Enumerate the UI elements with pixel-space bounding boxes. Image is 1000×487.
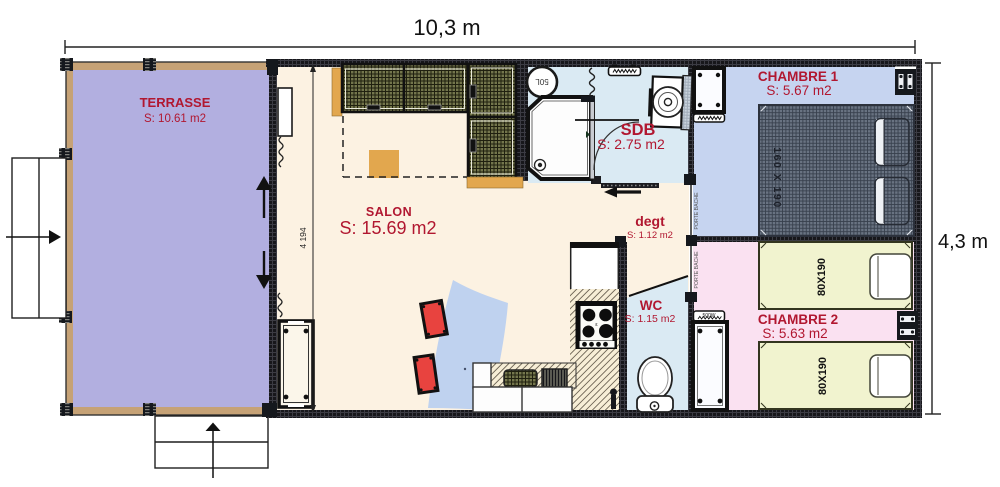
svg-text:S: 5.67 m2: S: 5.67 m2 [766, 83, 831, 98]
svg-text:CHAMBRE 2: CHAMBRE 2 [758, 312, 838, 327]
svg-text:160 X 190: 160 X 190 [771, 147, 783, 208]
svg-text:80X190: 80X190 [816, 258, 828, 296]
svg-text:4 194: 4 194 [298, 227, 308, 249]
svg-text:S: 1.15 m2: S: 1.15 m2 [625, 313, 676, 325]
svg-text:S: 5.63 m2: S: 5.63 m2 [762, 326, 827, 341]
svg-text:S: 2.75 m2: S: 2.75 m2 [597, 136, 665, 152]
svg-text:SALON: SALON [366, 205, 412, 219]
svg-text:50L: 50L [535, 77, 549, 86]
svg-text:degt: degt [635, 213, 665, 229]
svg-text:CHAMBRE 1: CHAMBRE 1 [758, 69, 839, 84]
svg-text:4,3 m: 4,3 m [938, 231, 988, 253]
svg-text:80X190: 80X190 [817, 357, 829, 395]
svg-text:S: 1.12 m2: S: 1.12 m2 [627, 230, 673, 241]
svg-text:10,3 m: 10,3 m [413, 15, 480, 40]
svg-text:PORTE BACHE: PORTE BACHE [694, 251, 700, 289]
svg-text:S: 15.69 m2: S: 15.69 m2 [339, 218, 436, 238]
svg-text:TERRASSE: TERRASSE [140, 95, 211, 110]
svg-text:S: 10.61 m2: S: 10.61 m2 [144, 113, 206, 125]
svg-text:PORTE BACHE: PORTE BACHE [694, 192, 700, 230]
svg-text:WC: WC [640, 298, 663, 313]
